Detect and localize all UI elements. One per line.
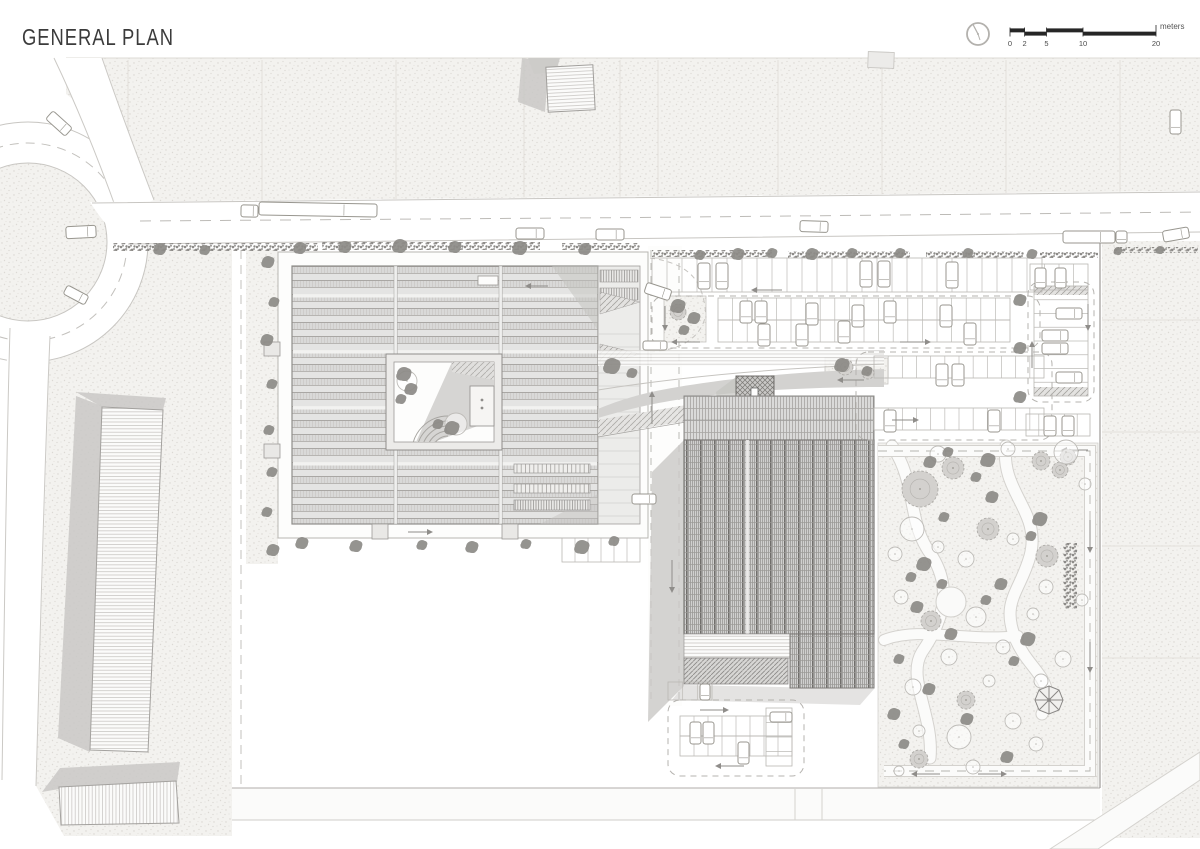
scale-tick-label: 20 xyxy=(1152,39,1160,48)
tree-canopy xyxy=(957,691,975,709)
tree-canopy xyxy=(910,750,928,768)
tree-outline xyxy=(966,760,980,774)
stall-row xyxy=(562,538,640,562)
hedge-strip xyxy=(1063,543,1077,609)
tree-canopy xyxy=(942,457,964,479)
tree-outline xyxy=(1005,713,1021,729)
tree-outline xyxy=(894,590,908,604)
tree-outline xyxy=(1001,442,1015,456)
car xyxy=(516,228,544,239)
stall-row xyxy=(874,408,1044,430)
tree-shrub xyxy=(295,537,308,549)
car xyxy=(241,205,258,217)
car xyxy=(738,742,749,764)
stall-row xyxy=(1026,414,1090,436)
tree-outline xyxy=(1034,674,1048,688)
road-south xyxy=(232,788,1100,820)
car xyxy=(878,261,890,287)
car xyxy=(936,364,948,386)
hedge-strip xyxy=(926,251,1024,258)
car xyxy=(1056,372,1082,383)
tree-shrub xyxy=(349,540,362,552)
tree-outline xyxy=(900,517,924,541)
tree-shrub xyxy=(520,539,531,549)
secondary-building-top-band xyxy=(684,396,874,440)
tree-shrub xyxy=(1013,391,1026,403)
scale-bar-labels: 0 2 5 10 20 xyxy=(1008,39,1160,48)
secondary-building-roof xyxy=(684,440,874,634)
car xyxy=(1056,308,1082,319)
tree-outline xyxy=(1029,737,1043,751)
tree-outline xyxy=(888,547,902,561)
car xyxy=(66,225,97,239)
car xyxy=(1116,231,1127,243)
car xyxy=(700,684,710,700)
context-building-small xyxy=(868,52,895,69)
secondary-building-seam xyxy=(746,440,749,634)
tree-outline xyxy=(958,551,974,567)
tree-outline xyxy=(894,766,904,776)
garden-pavilion xyxy=(1035,686,1063,714)
secondary-building-ext-hlines xyxy=(684,634,790,658)
context-building-southwest xyxy=(42,762,180,825)
tree-outline xyxy=(1079,478,1091,490)
context-building-north xyxy=(518,58,595,112)
tree-canopy xyxy=(902,471,938,507)
car xyxy=(838,321,850,343)
tree-outline xyxy=(932,541,944,553)
tree-outline xyxy=(947,725,971,749)
block-north xyxy=(66,58,1200,206)
car xyxy=(1063,231,1115,243)
car xyxy=(632,494,656,504)
secondary-building-ext-diag xyxy=(684,658,788,684)
car xyxy=(1042,343,1068,354)
secondary-building-ext-right xyxy=(790,634,874,688)
page-title: GENERAL PLAN xyxy=(22,24,174,51)
car xyxy=(770,712,792,722)
tree-shrub xyxy=(574,540,589,554)
car xyxy=(884,410,896,432)
tree-outline xyxy=(1055,651,1071,667)
tree-outline xyxy=(1007,533,1019,545)
car xyxy=(698,263,710,289)
tree-outline xyxy=(996,640,1010,654)
hedge-strip xyxy=(1040,252,1098,258)
tree-canopy xyxy=(1032,452,1050,470)
scale-bar: 0 2 5 10 20 meters xyxy=(962,16,1188,64)
car xyxy=(964,323,976,345)
hedge-strip xyxy=(652,250,772,257)
car xyxy=(740,301,752,323)
tree-shrub xyxy=(1026,249,1037,259)
car xyxy=(703,722,714,744)
hedge-strip xyxy=(113,243,318,251)
roof-grills xyxy=(514,464,590,510)
roof-vent xyxy=(478,276,498,285)
courtyard-room xyxy=(470,386,494,426)
car xyxy=(1055,268,1066,288)
scale-unit-label: meters xyxy=(1160,22,1184,31)
tree-shrub xyxy=(1013,294,1026,306)
tree-canopy xyxy=(921,611,941,631)
car xyxy=(796,324,808,346)
tree-outline xyxy=(966,607,986,627)
car xyxy=(1042,330,1068,341)
car xyxy=(716,263,728,289)
secondary-building-shadow xyxy=(648,440,684,722)
tree-outline xyxy=(941,649,957,665)
tree-outline xyxy=(1039,580,1053,594)
scale-tick-label: 10 xyxy=(1079,39,1087,48)
car xyxy=(952,364,964,386)
scale-tick-label: 2 xyxy=(1023,39,1027,48)
tree-canopy xyxy=(977,518,999,540)
car xyxy=(1035,268,1046,288)
scale-tick-label: 0 xyxy=(1008,39,1012,48)
garden-clearing xyxy=(936,587,966,617)
car xyxy=(1044,416,1056,436)
car xyxy=(988,410,1000,432)
car xyxy=(860,261,872,287)
context-building-tall-west xyxy=(58,392,166,752)
main-building xyxy=(246,250,648,564)
car xyxy=(946,262,958,288)
car xyxy=(643,341,667,350)
tree-outline xyxy=(913,725,925,737)
north-indicator-icon xyxy=(967,23,989,45)
site-plan xyxy=(0,0,1200,849)
tree-canopy xyxy=(1036,545,1058,567)
car xyxy=(852,305,864,327)
east-wing xyxy=(598,266,640,524)
car xyxy=(800,221,828,233)
tree-shrub xyxy=(465,541,478,553)
scale-tick-label: 5 xyxy=(1044,39,1048,48)
car xyxy=(884,301,896,323)
tree-outline xyxy=(905,679,921,695)
car xyxy=(259,202,377,217)
car xyxy=(690,722,701,744)
block-east xyxy=(1102,241,1200,838)
tree-outline xyxy=(1076,594,1088,606)
secondary-building xyxy=(648,396,874,722)
car xyxy=(596,229,624,240)
car xyxy=(758,324,770,346)
tree-outline xyxy=(1054,440,1078,464)
scale-bar-graphic xyxy=(1010,25,1156,37)
car xyxy=(806,303,818,325)
tree-outline xyxy=(1027,608,1039,620)
car xyxy=(940,305,952,327)
tree-outline xyxy=(983,675,995,687)
car xyxy=(1062,416,1074,436)
hedge-strip xyxy=(322,242,540,250)
stall-hatch-cap xyxy=(1034,387,1088,396)
car xyxy=(1170,110,1181,134)
tree-shrub xyxy=(766,248,777,258)
car xyxy=(755,301,767,323)
tree-shrub xyxy=(416,540,427,550)
hedge-strip xyxy=(562,243,640,250)
stairs xyxy=(600,270,638,282)
